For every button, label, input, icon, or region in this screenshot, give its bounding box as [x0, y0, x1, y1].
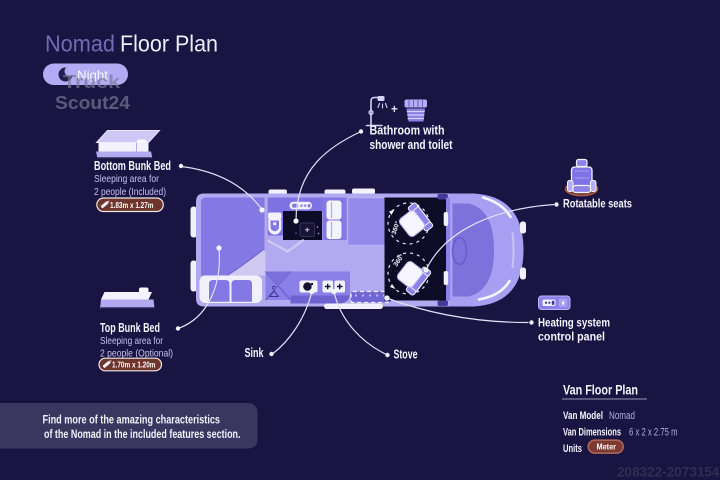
svg-text:Scout24: Scout24 [55, 92, 131, 113]
svg-text:Van Model: Van Model [563, 410, 603, 422]
svg-text:+: + [391, 104, 398, 116]
svg-text:Van Dimensions: Van Dimensions [563, 427, 621, 439]
svg-text:Units: Units [563, 443, 582, 455]
svg-text:Stove: Stove [394, 348, 418, 362]
svg-text:Sleeping area for: Sleeping area for [100, 335, 163, 347]
svg-text:Bottom Bunk Bed: Bottom Bunk Bed [94, 159, 171, 173]
svg-text:Meter: Meter [597, 443, 617, 452]
svg-text:Floor Plan: Floor Plan [120, 31, 218, 57]
svg-text:Bathroom with: Bathroom with [370, 124, 445, 138]
svg-text:6 x 2 x 2.75 m: 6 x 2 x 2.75 m [629, 427, 678, 439]
svg-text:Sleeping area for: Sleeping area for [94, 173, 159, 185]
svg-text:208322-20731547: 208322-20731547 [617, 464, 720, 480]
svg-text:Truck: Truck [63, 72, 121, 92]
svg-text:Nomad: Nomad [609, 410, 635, 422]
svg-text:of the Nomad in the included f: of the Nomad in the included features se… [44, 429, 241, 441]
svg-text:Heating system: Heating system [538, 316, 610, 330]
svg-text:Top Bunk Bed: Top Bunk Bed [100, 321, 160, 335]
svg-text:1.83m x 1.27m: 1.83m x 1.27m [110, 201, 154, 210]
svg-text:Find more of the amazing chara: Find more of the amazing characteristics [43, 415, 221, 427]
svg-text:1.70m x 1.20m: 1.70m x 1.20m [112, 360, 156, 369]
svg-text:Rotatable seats: Rotatable seats [563, 199, 632, 211]
svg-text:Van Floor Plan: Van Floor Plan [563, 383, 638, 398]
svg-text:control panel: control panel [538, 330, 605, 344]
svg-text:2 people (Included): 2 people (Included) [94, 186, 166, 198]
svg-text:Sink: Sink [245, 346, 264, 360]
svg-text:Nomad: Nomad [45, 31, 115, 57]
svg-text:shower and toilet: shower and toilet [370, 138, 454, 152]
